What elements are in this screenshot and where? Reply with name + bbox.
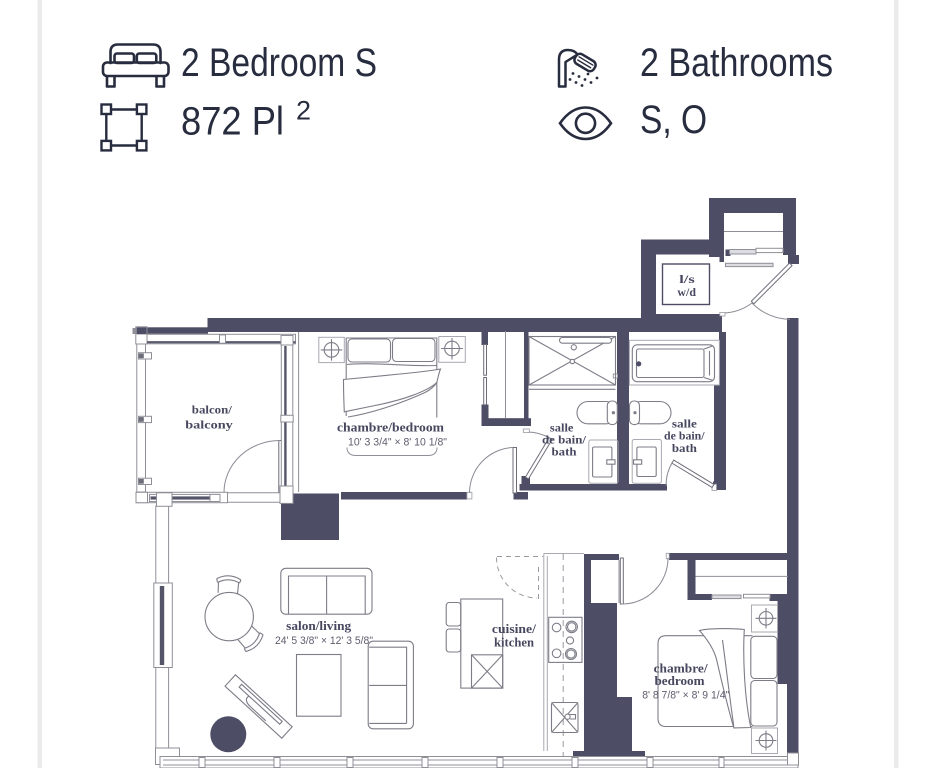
svg-text:10' 3 3/4" × 8' 10 1/8": 10' 3 3/4" × 8' 10 1/8": [348, 437, 447, 449]
svg-text:24' 5 3/8" × 12' 3 5/8": 24' 5 3/8" × 12' 3 5/8": [275, 635, 373, 647]
svg-text:de bain/: de bain/: [664, 431, 705, 443]
svg-text:bedroom: bedroom: [655, 673, 705, 688]
svg-text:bath: bath: [672, 443, 698, 455]
svg-text:2: 2: [296, 96, 311, 126]
svg-text:salle: salle: [672, 419, 697, 431]
svg-text:balcon/: balcon/: [192, 403, 233, 417]
svg-text:salon/living: salon/living: [286, 618, 352, 633]
svg-text:kitchen: kitchen: [494, 634, 535, 649]
svg-text:w/d: w/d: [677, 287, 696, 299]
svg-text:salle: salle: [550, 423, 574, 435]
svg-text:l/s: l/s: [679, 274, 695, 286]
svg-text:balcony: balcony: [185, 418, 233, 432]
svg-text:de bain/: de bain/: [542, 435, 587, 447]
svg-text:8' 8 7/8" × 8' 9 1/4": 8' 8 7/8" × 8' 9 1/4": [642, 690, 729, 702]
svg-text:872 Pl: 872 Pl: [181, 100, 284, 144]
svg-text:S, O: S, O: [640, 98, 707, 142]
svg-text:2 Bathrooms: 2 Bathrooms: [640, 41, 833, 85]
svg-text:bath: bath: [552, 447, 578, 459]
svg-text:2 Bedroom S: 2 Bedroom S: [181, 41, 377, 85]
svg-text:chambre/bedroom: chambre/bedroom: [337, 420, 444, 435]
